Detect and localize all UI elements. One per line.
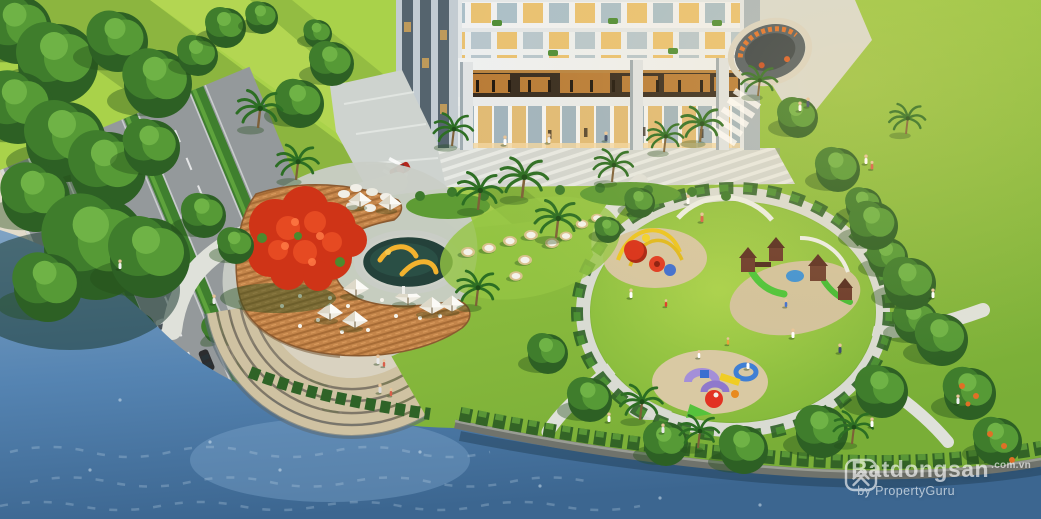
- scene-canvas: [0, 0, 1041, 519]
- watermark-tld: .com.vn: [991, 460, 1031, 471]
- watermark-byline: by PropertyGuru: [857, 485, 1031, 498]
- aerial-rendering: Batdongsan.com.vn by PropertyGuru: [0, 0, 1041, 519]
- watermark: Batdongsan.com.vn by PropertyGuru: [844, 458, 1031, 498]
